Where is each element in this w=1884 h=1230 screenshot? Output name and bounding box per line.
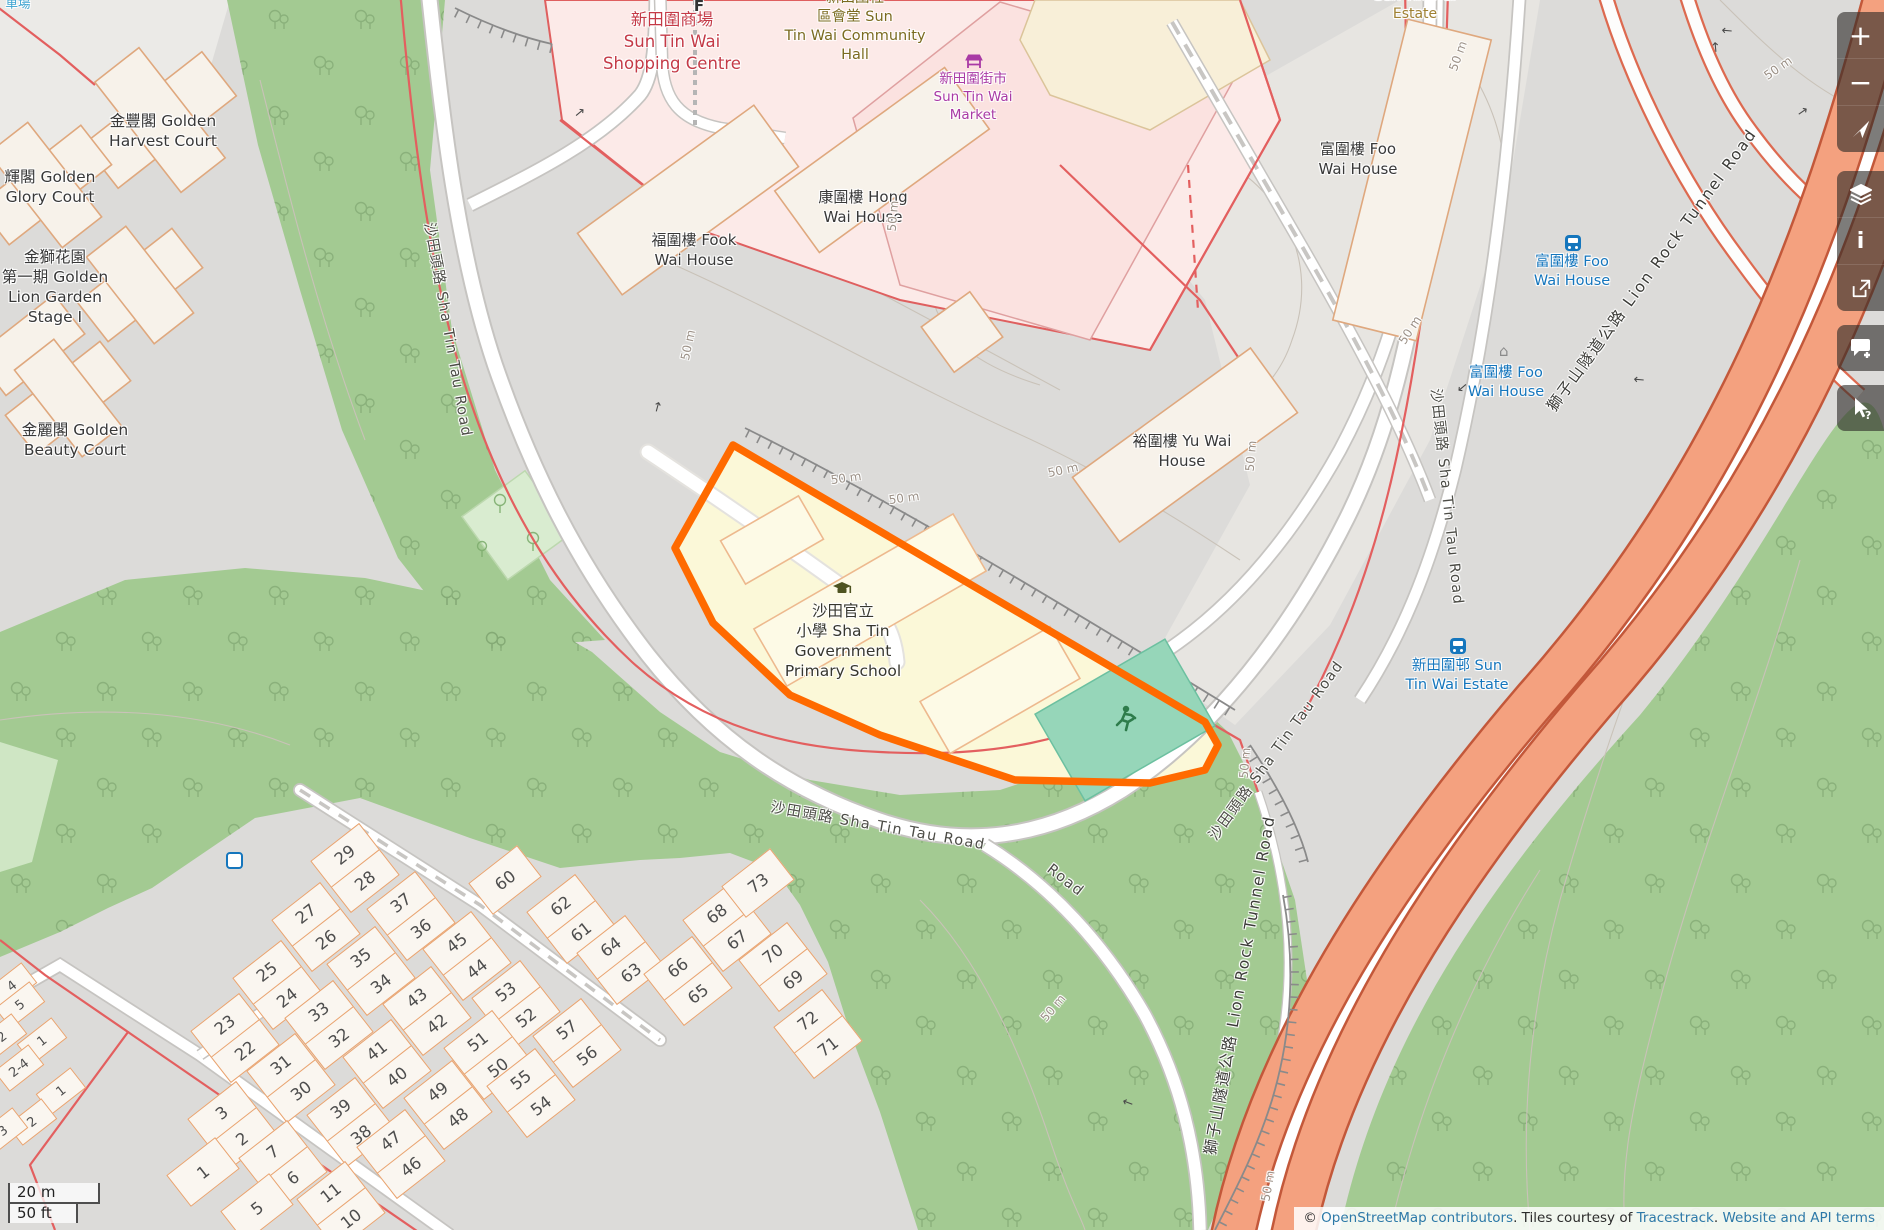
query-features-icon: ? [1848,395,1874,421]
attribution-bar: © OpenStreetMap contributors. Tiles cour… [1294,1207,1884,1230]
attribution-text: . Tiles courtesy of [1513,1210,1637,1226]
basemap-svg [0,0,1884,1230]
tracestrack-link[interactable]: Tracestrack [1637,1210,1714,1226]
copyright-symbol: © [1303,1210,1321,1226]
zoom-out-icon: − [1849,66,1872,99]
map-viewport: 2928272625242322373635343332313060454443… [0,0,1884,1230]
layers-button[interactable] [1837,171,1884,217]
info-icon: i [1857,229,1865,254]
note-control-group [1837,325,1884,371]
add-note-button[interactable] [1837,325,1884,371]
locate-icon [1850,118,1872,140]
map-tools-group: i [1837,171,1884,311]
zoom-in-icon: + [1849,19,1872,52]
terms-link[interactable]: Website and API terms [1722,1210,1875,1226]
osm-contributors-link[interactable]: OpenStreetMap contributors [1321,1210,1513,1226]
zoom-in-button[interactable]: + [1837,12,1884,58]
layers-icon [1849,182,1873,206]
share-button[interactable] [1837,264,1884,311]
query-features-button[interactable]: ? [1837,385,1884,431]
zoom-out-button[interactable]: − [1837,58,1884,105]
share-icon [1850,277,1872,299]
locate-button[interactable] [1837,105,1884,152]
query-control-group: ? [1837,385,1884,431]
svg-text:?: ? [1865,409,1871,421]
add-note-icon [1849,336,1873,360]
info-button[interactable]: i [1837,217,1884,264]
zoom-control-group: + − [1837,12,1884,152]
